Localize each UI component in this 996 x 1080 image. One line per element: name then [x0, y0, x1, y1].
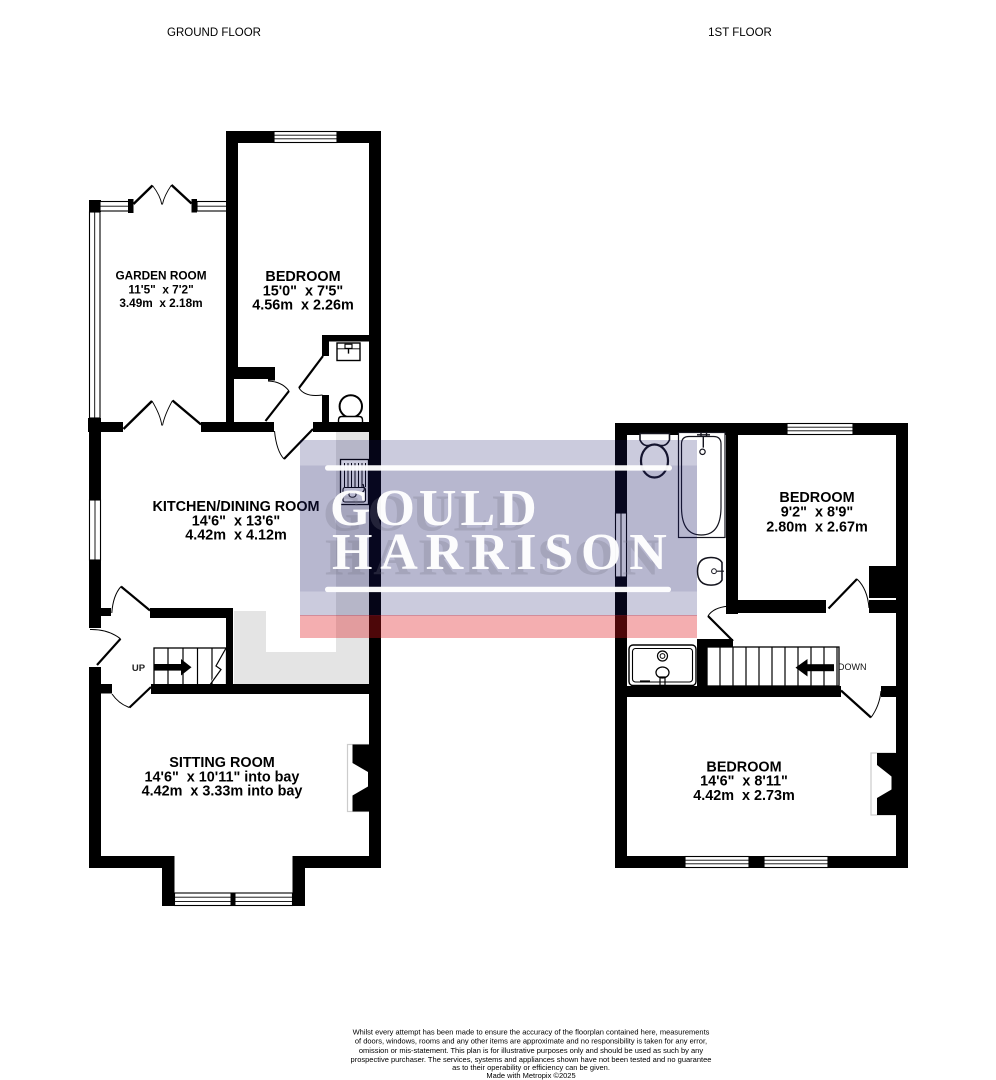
- svg-text:Whilst every attempt has been: Whilst every attempt has been made to en…: [353, 1027, 710, 1036]
- svg-text:GARDEN ROOM: GARDEN ROOM: [115, 269, 206, 283]
- svg-text:9'2" x 8'9": 9'2" x 8'9": [781, 504, 854, 520]
- svg-text:3.49m x 2.18m: 3.49m x 2.18m: [119, 296, 202, 310]
- svg-text:UP: UP: [132, 663, 146, 674]
- svg-text:4.42m x 4.12m: 4.42m x 4.12m: [185, 528, 287, 544]
- svg-text:of doors, windows, rooms and a: of doors, windows, rooms and any other i…: [355, 1037, 707, 1046]
- svg-text:DOWN: DOWN: [838, 662, 867, 672]
- svg-text:2.80m x 2.67m: 2.80m x 2.67m: [766, 520, 868, 536]
- svg-text:omission or mis-statement. Thi: omission or mis-statement. This plan is …: [359, 1046, 703, 1055]
- svg-text:GROUND FLOOR: GROUND FLOOR: [167, 27, 261, 39]
- svg-text:1ST FLOOR: 1ST FLOOR: [708, 27, 772, 39]
- svg-text:4.42m x 2.73m: 4.42m x 2.73m: [693, 788, 795, 804]
- svg-text:HARRISON: HARRISON: [332, 524, 675, 581]
- svg-text:11'5" x 7'2": 11'5" x 7'2": [128, 283, 193, 297]
- svg-text:4.42m x 3.33m into bay: 4.42m x 3.33m into bay: [142, 784, 303, 800]
- svg-text:4.56m x 2.26m: 4.56m x 2.26m: [252, 298, 354, 314]
- svg-text:Made with Metropix ©2025: Made with Metropix ©2025: [486, 1071, 575, 1080]
